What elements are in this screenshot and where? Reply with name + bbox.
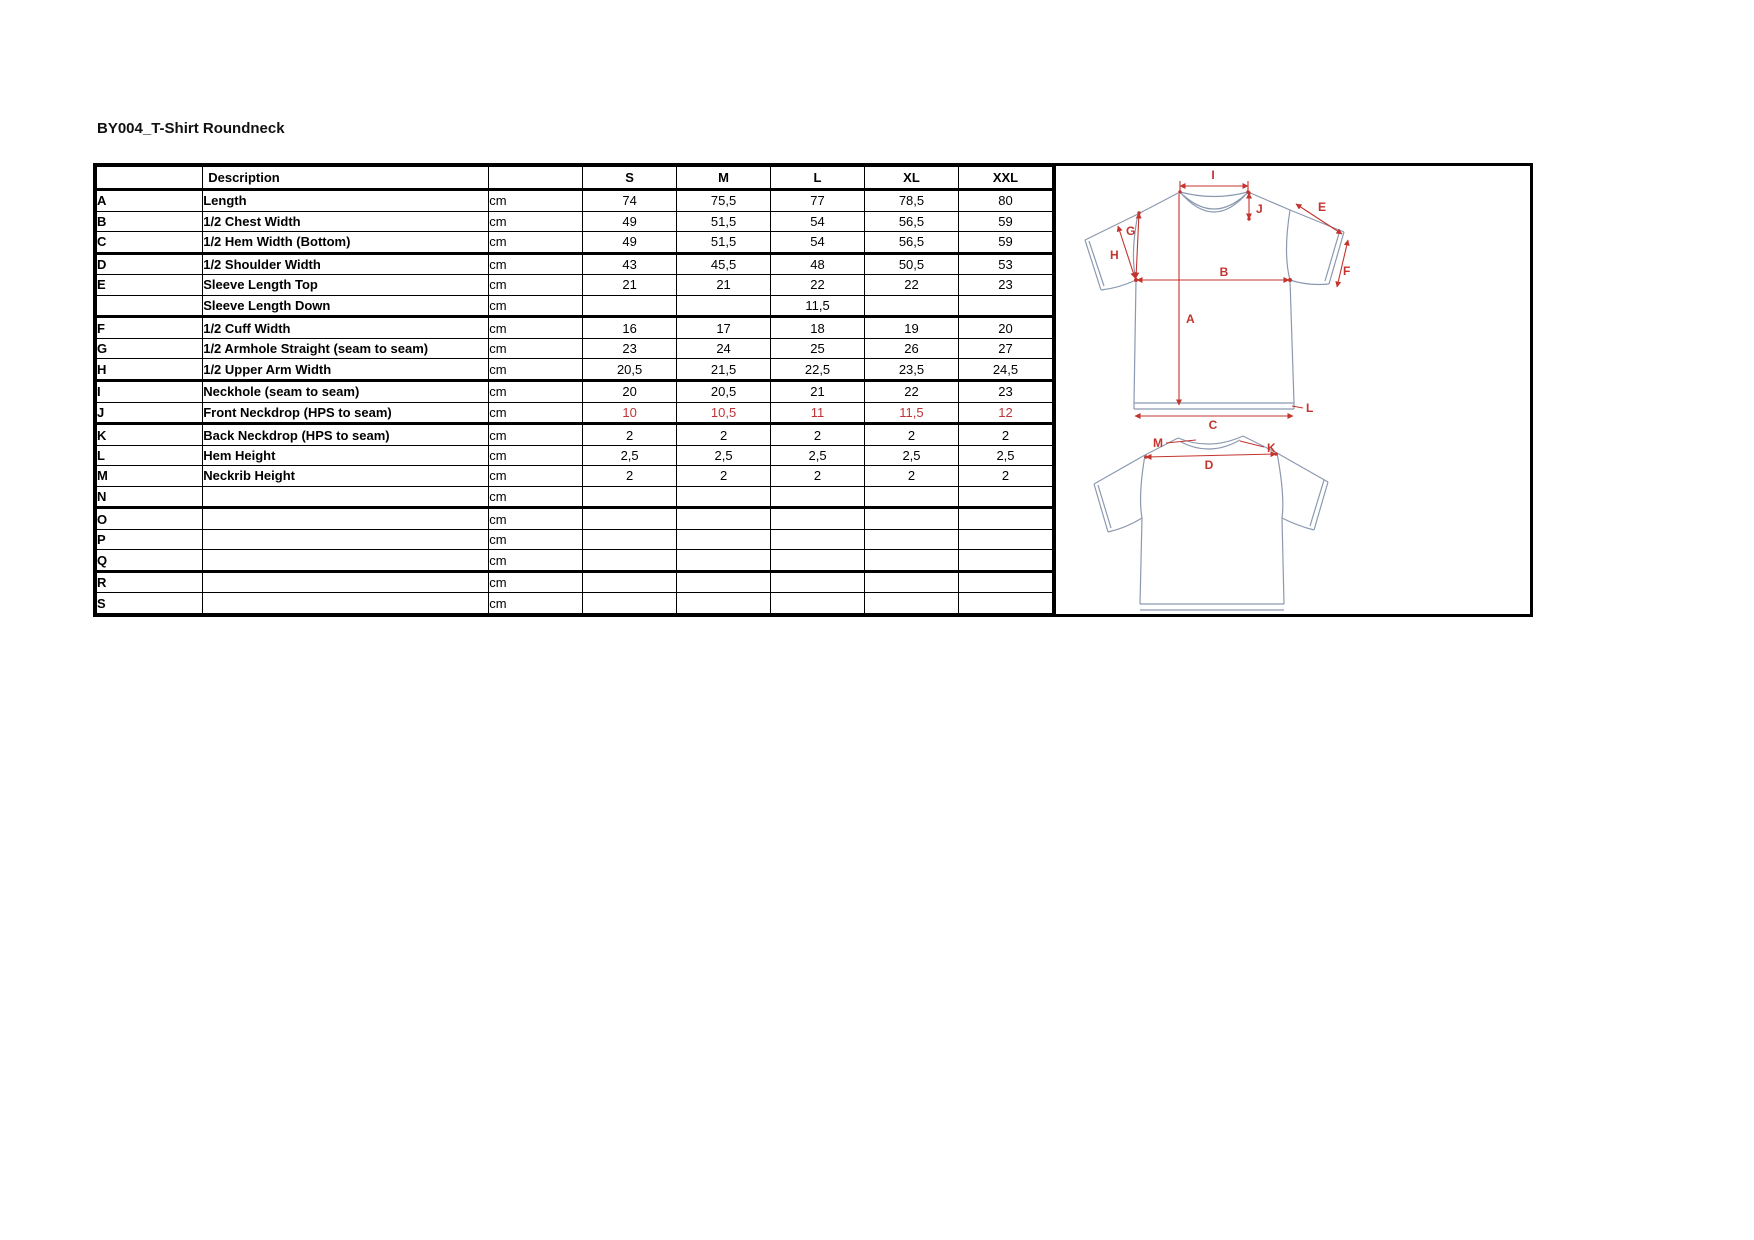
size-value: 22 (771, 275, 865, 295)
size-table: Description S M L XL XXL ALengthcm7475,5… (96, 166, 1053, 614)
row-unit: cm (489, 380, 583, 402)
table-row: Ocm (97, 508, 1053, 530)
annotation-label-l: L (1306, 401, 1313, 415)
size-value (958, 508, 1052, 530)
size-value: 20 (583, 380, 677, 402)
table-row: ALengthcm7475,57778,580 (97, 190, 1053, 212)
row-unit: cm (489, 593, 583, 614)
size-value (677, 486, 771, 508)
size-value: 2 (771, 424, 865, 446)
row-description: 1/2 Shoulder Width (203, 253, 489, 275)
size-value: 2 (677, 466, 771, 486)
size-value: 2 (771, 466, 865, 486)
row-description: 1/2 Upper Arm Width (203, 359, 489, 381)
row-description (203, 486, 489, 508)
size-value: 24 (677, 338, 771, 358)
row-letter: N (97, 486, 203, 508)
size-value (771, 508, 865, 530)
size-value: 22 (865, 275, 959, 295)
annotation-label-i: I (1211, 168, 1214, 182)
size-value (958, 593, 1052, 614)
row-description: 1/2 Armhole Straight (seam to seam) (203, 338, 489, 358)
size-value: 17 (677, 317, 771, 339)
row-unit: cm (489, 529, 583, 549)
size-value (771, 571, 865, 593)
size-value: 21 (771, 380, 865, 402)
row-unit: cm (489, 211, 583, 231)
size-value: 2 (583, 466, 677, 486)
annotation-label-m: M (1153, 436, 1163, 450)
size-value: 51,5 (677, 232, 771, 254)
size-value: 23 (958, 380, 1052, 402)
size-value: 78,5 (865, 190, 959, 212)
row-description: Sleeve Length Down (203, 295, 489, 317)
size-value (865, 593, 959, 614)
row-unit: cm (489, 232, 583, 254)
size-value: 26 (865, 338, 959, 358)
size-value (677, 295, 771, 317)
row-description (203, 508, 489, 530)
size-value (865, 529, 959, 549)
tshirt-diagram-svg: I J E F G H B A L C M K D (1056, 166, 1533, 614)
size-value: 21 (583, 275, 677, 295)
size-value: 21,5 (677, 359, 771, 381)
header-letter (97, 167, 203, 190)
row-description: Length (203, 190, 489, 212)
row-letter: G (97, 338, 203, 358)
measurement-arrows (1118, 181, 1348, 457)
table-row: G1/2 Armhole Straight (seam to seam)cm23… (97, 338, 1053, 358)
size-value: 2 (583, 424, 677, 446)
table-row: C1/2 Hem Width (Bottom)cm4951,55456,559 (97, 232, 1053, 254)
row-unit: cm (489, 253, 583, 275)
size-value (771, 529, 865, 549)
spec-sheet-frame: Description S M L XL XXL ALengthcm7475,5… (93, 163, 1533, 617)
table-row: Pcm (97, 529, 1053, 549)
size-table-body: ALengthcm7475,57778,580B1/2 Chest Widthc… (97, 190, 1053, 614)
row-letter: O (97, 508, 203, 530)
row-letter: F (97, 317, 203, 339)
size-value: 11,5 (771, 295, 865, 317)
header-size-xxl: XXL (958, 167, 1052, 190)
table-row: JFront Neckdrop (HPS to seam)cm1010,5111… (97, 402, 1053, 424)
size-value (958, 529, 1052, 549)
size-value: 56,5 (865, 232, 959, 254)
size-value: 2 (958, 466, 1052, 486)
size-value: 80 (958, 190, 1052, 212)
size-value: 11,5 (865, 402, 959, 424)
size-value: 59 (958, 232, 1052, 254)
size-value (677, 529, 771, 549)
row-letter: A (97, 190, 203, 212)
row-description: Sleeve Length Top (203, 275, 489, 295)
row-unit: cm (489, 295, 583, 317)
size-value: 16 (583, 317, 677, 339)
size-value: 49 (583, 211, 677, 231)
annotation-label-b: B (1220, 265, 1229, 279)
table-row: B1/2 Chest Widthcm4951,55456,559 (97, 211, 1053, 231)
row-description (203, 571, 489, 593)
row-description: 1/2 Hem Width (Bottom) (203, 232, 489, 254)
header-size-l: L (771, 167, 865, 190)
annotation-label-f: F (1343, 264, 1350, 278)
size-value: 2,5 (677, 445, 771, 465)
row-unit: cm (489, 338, 583, 358)
size-value: 20,5 (677, 380, 771, 402)
size-value: 20 (958, 317, 1052, 339)
size-value: 21 (677, 275, 771, 295)
size-value: 77 (771, 190, 865, 212)
size-value: 75,5 (677, 190, 771, 212)
row-description: Neckhole (seam to seam) (203, 380, 489, 402)
row-unit: cm (489, 571, 583, 593)
annotation-label-e: E (1318, 200, 1326, 214)
row-description (203, 550, 489, 572)
size-value: 23,5 (865, 359, 959, 381)
row-letter: Q (97, 550, 203, 572)
size-value: 43 (583, 253, 677, 275)
size-value: 2,5 (958, 445, 1052, 465)
size-value (677, 593, 771, 614)
size-value (865, 508, 959, 530)
row-unit: cm (489, 445, 583, 465)
annotation-label-h: H (1110, 248, 1119, 262)
row-letter: P (97, 529, 203, 549)
size-value: 56,5 (865, 211, 959, 231)
size-value: 2,5 (583, 445, 677, 465)
size-value: 24,5 (958, 359, 1052, 381)
row-unit: cm (489, 359, 583, 381)
size-value: 10,5 (677, 402, 771, 424)
size-value (583, 486, 677, 508)
size-value: 48 (771, 253, 865, 275)
size-value: 49 (583, 232, 677, 254)
size-value (771, 486, 865, 508)
annotation-label-d: D (1205, 458, 1214, 472)
table-row: Rcm (97, 571, 1053, 593)
size-value: 25 (771, 338, 865, 358)
header-unit (489, 167, 583, 190)
table-row: INeckhole (seam to seam)cm2020,5212223 (97, 380, 1053, 402)
size-value: 2,5 (865, 445, 959, 465)
size-table-container: Description S M L XL XXL ALengthcm7475,5… (96, 166, 1053, 614)
table-row: Sleeve Length Downcm11,5 (97, 295, 1053, 317)
size-value (771, 550, 865, 572)
row-description: Hem Height (203, 445, 489, 465)
table-row: ESleeve Length Topcm2121222223 (97, 275, 1053, 295)
size-value: 50,5 (865, 253, 959, 275)
row-description: Front Neckdrop (HPS to seam) (203, 402, 489, 424)
row-unit: cm (489, 317, 583, 339)
row-letter (97, 295, 203, 317)
size-value: 59 (958, 211, 1052, 231)
size-value: 2,5 (771, 445, 865, 465)
size-value: 2 (865, 424, 959, 446)
row-unit: cm (489, 402, 583, 424)
size-value (865, 550, 959, 572)
annotation-label-k: K (1267, 441, 1276, 455)
size-value: 51,5 (677, 211, 771, 231)
size-value (865, 486, 959, 508)
table-row: Ncm (97, 486, 1053, 508)
row-description: Neckrib Height (203, 466, 489, 486)
annotation-label-c: C (1209, 418, 1218, 432)
table-row: Scm (97, 593, 1053, 614)
table-row: Qcm (97, 550, 1053, 572)
row-description: 1/2 Cuff Width (203, 317, 489, 339)
front-view-drawing (1085, 192, 1344, 409)
row-letter: R (97, 571, 203, 593)
row-letter: L (97, 445, 203, 465)
size-value (583, 571, 677, 593)
size-value (958, 550, 1052, 572)
row-description: 1/2 Chest Width (203, 211, 489, 231)
row-letter: H (97, 359, 203, 381)
header-size-s: S (583, 167, 677, 190)
table-row: MNeckrib Heightcm22222 (97, 466, 1053, 486)
size-value: 54 (771, 211, 865, 231)
size-value (865, 571, 959, 593)
size-value (865, 295, 959, 317)
size-value: 12 (958, 402, 1052, 424)
row-unit: cm (489, 486, 583, 508)
size-value (583, 295, 677, 317)
row-letter: M (97, 466, 203, 486)
row-unit: cm (489, 190, 583, 212)
size-value (677, 550, 771, 572)
size-value: 45,5 (677, 253, 771, 275)
size-value: 27 (958, 338, 1052, 358)
header-size-xl: XL (865, 167, 959, 190)
row-description: Back Neckdrop (HPS to seam) (203, 424, 489, 446)
size-value (677, 508, 771, 530)
table-row: F1/2 Cuff Widthcm1617181920 (97, 317, 1053, 339)
row-unit: cm (489, 508, 583, 530)
size-value: 10 (583, 402, 677, 424)
size-value: 11 (771, 402, 865, 424)
table-header-row: Description S M L XL XXL (97, 167, 1053, 190)
size-value (958, 295, 1052, 317)
row-letter: J (97, 402, 203, 424)
size-value: 2 (958, 424, 1052, 446)
size-value: 23 (583, 338, 677, 358)
page-title: BY004_T-Shirt Roundneck (97, 120, 285, 137)
size-value: 54 (771, 232, 865, 254)
table-row: KBack Neckdrop (HPS to seam)cm22222 (97, 424, 1053, 446)
row-unit: cm (489, 466, 583, 486)
size-value: 22,5 (771, 359, 865, 381)
header-size-m: M (677, 167, 771, 190)
row-unit: cm (489, 424, 583, 446)
size-value (583, 508, 677, 530)
row-description (203, 529, 489, 549)
header-description: Description (203, 167, 489, 190)
table-row: D1/2 Shoulder Widthcm4345,54850,553 (97, 253, 1053, 275)
size-value: 53 (958, 253, 1052, 275)
row-unit: cm (489, 550, 583, 572)
size-value (958, 571, 1052, 593)
size-value (583, 593, 677, 614)
size-value: 18 (771, 317, 865, 339)
row-letter: D (97, 253, 203, 275)
annotation-label-a: A (1186, 312, 1195, 326)
size-value: 2 (865, 466, 959, 486)
size-value (677, 571, 771, 593)
size-value: 20,5 (583, 359, 677, 381)
size-value: 74 (583, 190, 677, 212)
table-row: H1/2 Upper Arm Widthcm20,521,522,523,524… (97, 359, 1053, 381)
size-value (583, 529, 677, 549)
row-description (203, 593, 489, 614)
annotation-label-j: J (1256, 202, 1263, 216)
row-letter: I (97, 380, 203, 402)
size-value (583, 550, 677, 572)
row-letter: E (97, 275, 203, 295)
size-value (958, 486, 1052, 508)
row-letter: B (97, 211, 203, 231)
row-letter: S (97, 593, 203, 614)
diagram-panel: I J E F G H B A L C M K D (1053, 166, 1530, 614)
annotation-label-g: G (1126, 224, 1135, 238)
row-unit: cm (489, 275, 583, 295)
row-letter: C (97, 232, 203, 254)
size-value: 2 (677, 424, 771, 446)
size-value: 19 (865, 317, 959, 339)
size-value: 22 (865, 380, 959, 402)
size-value (771, 593, 865, 614)
row-letter: K (97, 424, 203, 446)
size-value: 23 (958, 275, 1052, 295)
table-row: LHem Heightcm2,52,52,52,52,5 (97, 445, 1053, 465)
